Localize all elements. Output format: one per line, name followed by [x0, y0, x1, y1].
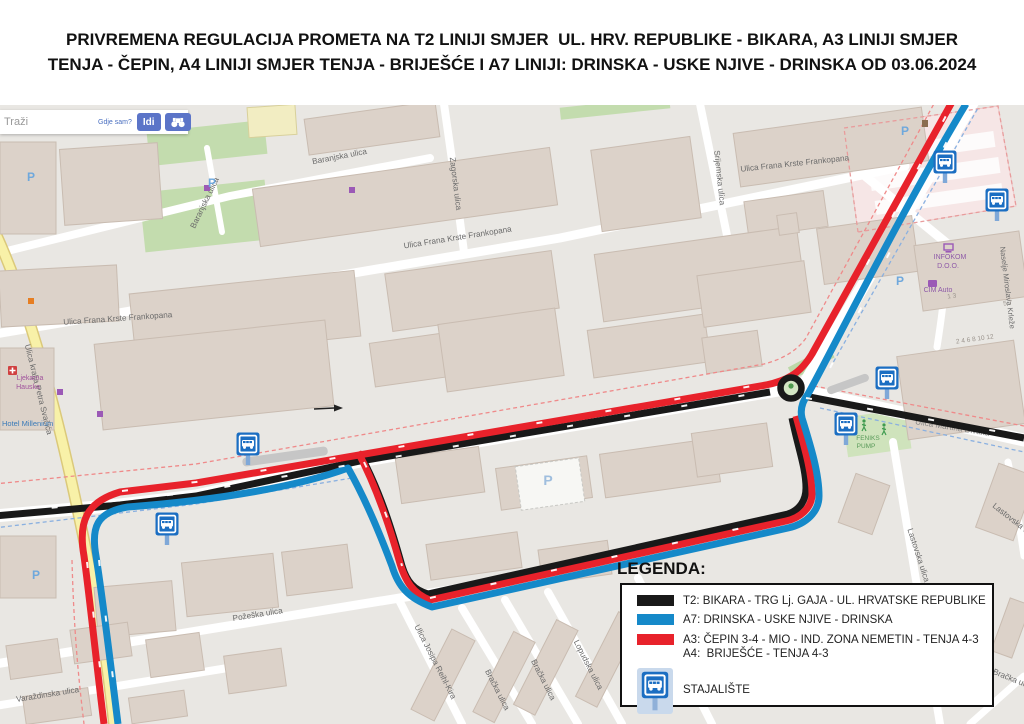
svg-text:P: P	[32, 568, 40, 582]
svg-text:5 7: 5 7	[1003, 299, 1013, 307]
svg-text:P: P	[27, 170, 35, 184]
page-title-line1: PRIVREMENA REGULACIJA PROMETA NA T2 LINI…	[66, 28, 958, 53]
map-search-bar: Gdje sam? Idi	[0, 110, 188, 134]
legend-row-a7: A7: DRINSKA - USKE NJIVE - DRINSKA	[637, 613, 992, 627]
search-input[interactable]	[0, 111, 98, 133]
pharmacy-icon	[8, 366, 17, 375]
car-shop-icon	[928, 280, 937, 287]
binoculars-icon	[171, 117, 185, 128]
legend-swatch-a3	[637, 634, 674, 645]
waste-bin-icon	[922, 120, 928, 127]
poi-label: FENIKS	[856, 435, 880, 442]
legend-heading: LEGENDA:	[617, 559, 706, 579]
poi-label: D.O.O.	[937, 263, 959, 270]
svg-text:P: P	[208, 176, 216, 190]
legend-label-stop: STAJALIŠTE	[683, 683, 750, 697]
poi-icon	[57, 389, 63, 395]
poi-label: Hotel Millenium	[2, 419, 53, 428]
screenshot-root: Baranjska ulica Baranjska ulica Zagorska…	[0, 0, 1024, 724]
poi-label: PUMP	[857, 443, 876, 450]
poi-label: Ljekarna	[17, 375, 44, 382]
legend-label-a7: A7: DRINSKA - USKE NJIVE - DRINSKA	[683, 613, 893, 627]
legend-box: T2: BIKARA - TRG Lj. GAJA - UL. HRVATSKE…	[620, 583, 994, 707]
go-button[interactable]: Idi	[137, 113, 161, 131]
poi-icon	[349, 187, 355, 193]
legend-label-t2: T2: BIKARA - TRG Lj. GAJA - UL. HRVATSKE…	[683, 594, 986, 608]
legend-bus-stop-icon	[637, 668, 673, 714]
legend-label-a3: A3: ČEPIN 3-4 - MIO - IND. ZONA NEMETIN …	[683, 633, 979, 647]
legend-label-a4: A4: BRIJEŠĆE - TENJA 4-3	[683, 647, 979, 661]
svg-text:P: P	[901, 124, 909, 138]
legend-row-a3-a4: A3: ČEPIN 3-4 - MIO - IND. ZONA NEMETIN …	[637, 633, 992, 662]
legend-row-stop: STAJALIŠTE	[637, 668, 992, 714]
poi-label: CIM Auto	[924, 287, 953, 294]
locate-button[interactable]	[165, 113, 191, 131]
svg-text:P: P	[896, 274, 904, 288]
page-title-line2: TENJA - ČEPIN, A4 LINIJI SMJER TENJA - B…	[48, 53, 977, 78]
poi-label: INFOKOM	[934, 254, 967, 261]
poi-label: Hauska	[16, 384, 40, 391]
where-am-i-link[interactable]: Gdje sam?	[98, 119, 132, 126]
title-bar: PRIVREMENA REGULACIJA PROMETA NA T2 LINI…	[0, 0, 1024, 105]
poi-icon	[97, 411, 103, 417]
svg-text:P: P	[543, 472, 552, 488]
roundabout	[781, 378, 802, 399]
legend-swatch-a7	[637, 614, 674, 625]
legend-row-t2: T2: BIKARA - TRG Lj. GAJA - UL. HRVATSKE…	[637, 594, 992, 608]
legend-swatch-t2	[637, 595, 674, 606]
cafe-icon	[28, 298, 34, 304]
